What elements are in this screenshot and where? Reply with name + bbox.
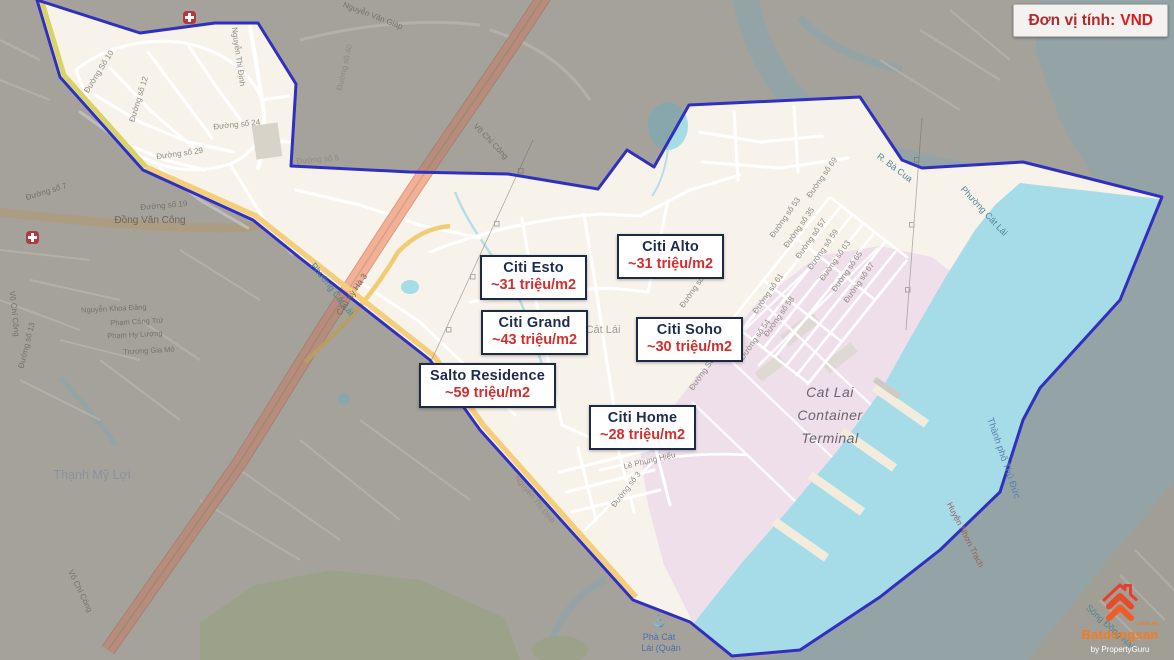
road-label-dong-van-cong: Đồng Văn Công — [114, 214, 185, 226]
ferry-anchor-icon: ⚓ — [652, 614, 667, 628]
unit-badge-label: Đơn vị tính: — [1028, 12, 1115, 30]
price-label-citi-alto[interactable]: Citi Alto ~31 triệu/m2 — [617, 234, 724, 279]
area-label-cat-lai: Cát Lái — [586, 324, 621, 336]
listing-name: Citi Soho — [647, 321, 732, 339]
brand-byline: by PropertyGuru — [1074, 646, 1166, 654]
brand-suffix: .com.vn — [1136, 622, 1159, 628]
listing-name: Citi Home — [600, 409, 685, 427]
listing-price: ~28 triệu/m2 — [600, 427, 685, 444]
listing-name: Citi Grand — [492, 314, 577, 332]
area-label-thanh-my-loi: Thạnh Mỹ Lợi — [54, 468, 131, 482]
hospital-icon — [183, 11, 196, 24]
ferry-label-line1: Phà Cát — [643, 632, 676, 642]
listing-price: ~31 triệu/m2 — [491, 277, 576, 294]
listing-price: ~30 triệu/m2 — [647, 339, 732, 356]
brand-wordmark: Batdongsan .com.vn — [1081, 628, 1158, 641]
listing-price: ~43 triệu/m2 — [492, 332, 577, 349]
price-label-citi-esto[interactable]: Citi Esto ~31 triệu/m2 — [480, 255, 587, 300]
listing-price: ~31 triệu/m2 — [628, 256, 713, 273]
batdongsan-house-icon — [1099, 580, 1141, 626]
ferry-label-line2: Lái (Quận — [641, 643, 681, 653]
listing-name: Salto Residence — [430, 367, 545, 385]
price-label-citi-soho[interactable]: Citi Soho ~30 triệu/m2 — [636, 317, 743, 362]
map-infographic: Thạnh Mỹ Lợi Đồng Văn Công Võ Chí Công V… — [0, 0, 1174, 660]
listing-name: Citi Alto — [628, 238, 713, 256]
listing-name: Citi Esto — [491, 259, 576, 277]
unit-badge-value: VND — [1120, 12, 1153, 30]
terminal-label-line1: Cat Lai — [806, 384, 854, 400]
price-label-citi-grand[interactable]: Citi Grand ~43 triệu/m2 — [481, 310, 588, 355]
listing-price: ~59 triệu/m2 — [430, 385, 545, 402]
price-label-citi-home[interactable]: Citi Home ~28 triệu/m2 — [589, 405, 696, 450]
hospital-icon-2 — [26, 231, 39, 244]
building-block — [252, 122, 282, 159]
brand-logo: Batdongsan .com.vn by PropertyGuru — [1074, 580, 1166, 654]
terminal-label-line2: Container — [797, 407, 863, 423]
terminal-label-line3: Terminal — [801, 430, 859, 446]
price-label-salto-residence[interactable]: Salto Residence ~59 triệu/m2 — [419, 363, 556, 408]
unit-badge: Đơn vị tính: VND — [1013, 4, 1168, 37]
